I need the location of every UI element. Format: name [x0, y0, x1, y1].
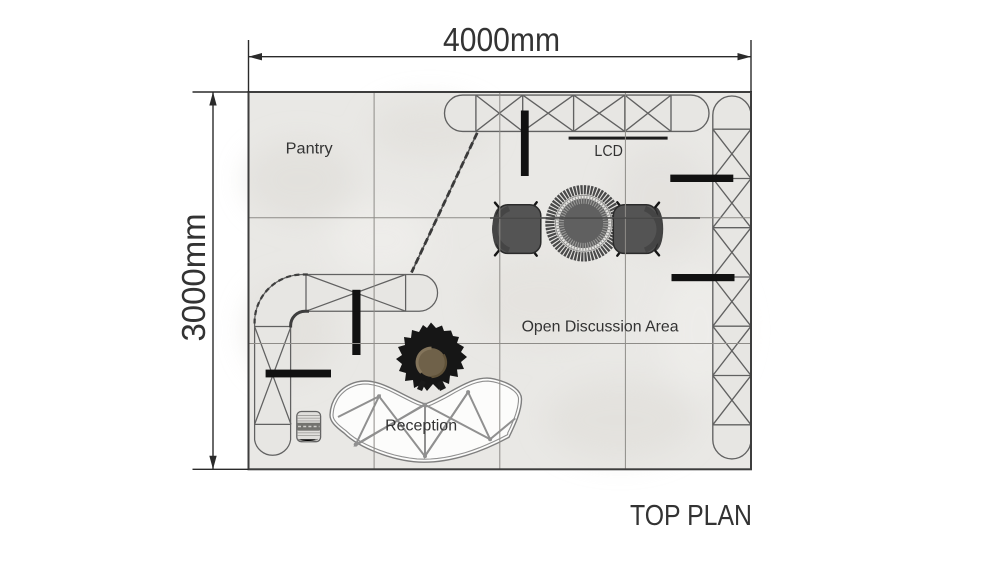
svg-text:Pantry: Pantry	[286, 141, 333, 158]
svg-text:LCD: LCD	[594, 143, 623, 160]
svg-text:TOP PLAN: TOP PLAN	[630, 500, 752, 532]
svg-text:3000mm: 3000mm	[175, 214, 212, 342]
svg-text:Open Discussion Area: Open Discussion Area	[522, 319, 679, 336]
svg-text:Reception: Reception	[385, 418, 457, 435]
svg-text:4000mm: 4000mm	[443, 21, 560, 58]
